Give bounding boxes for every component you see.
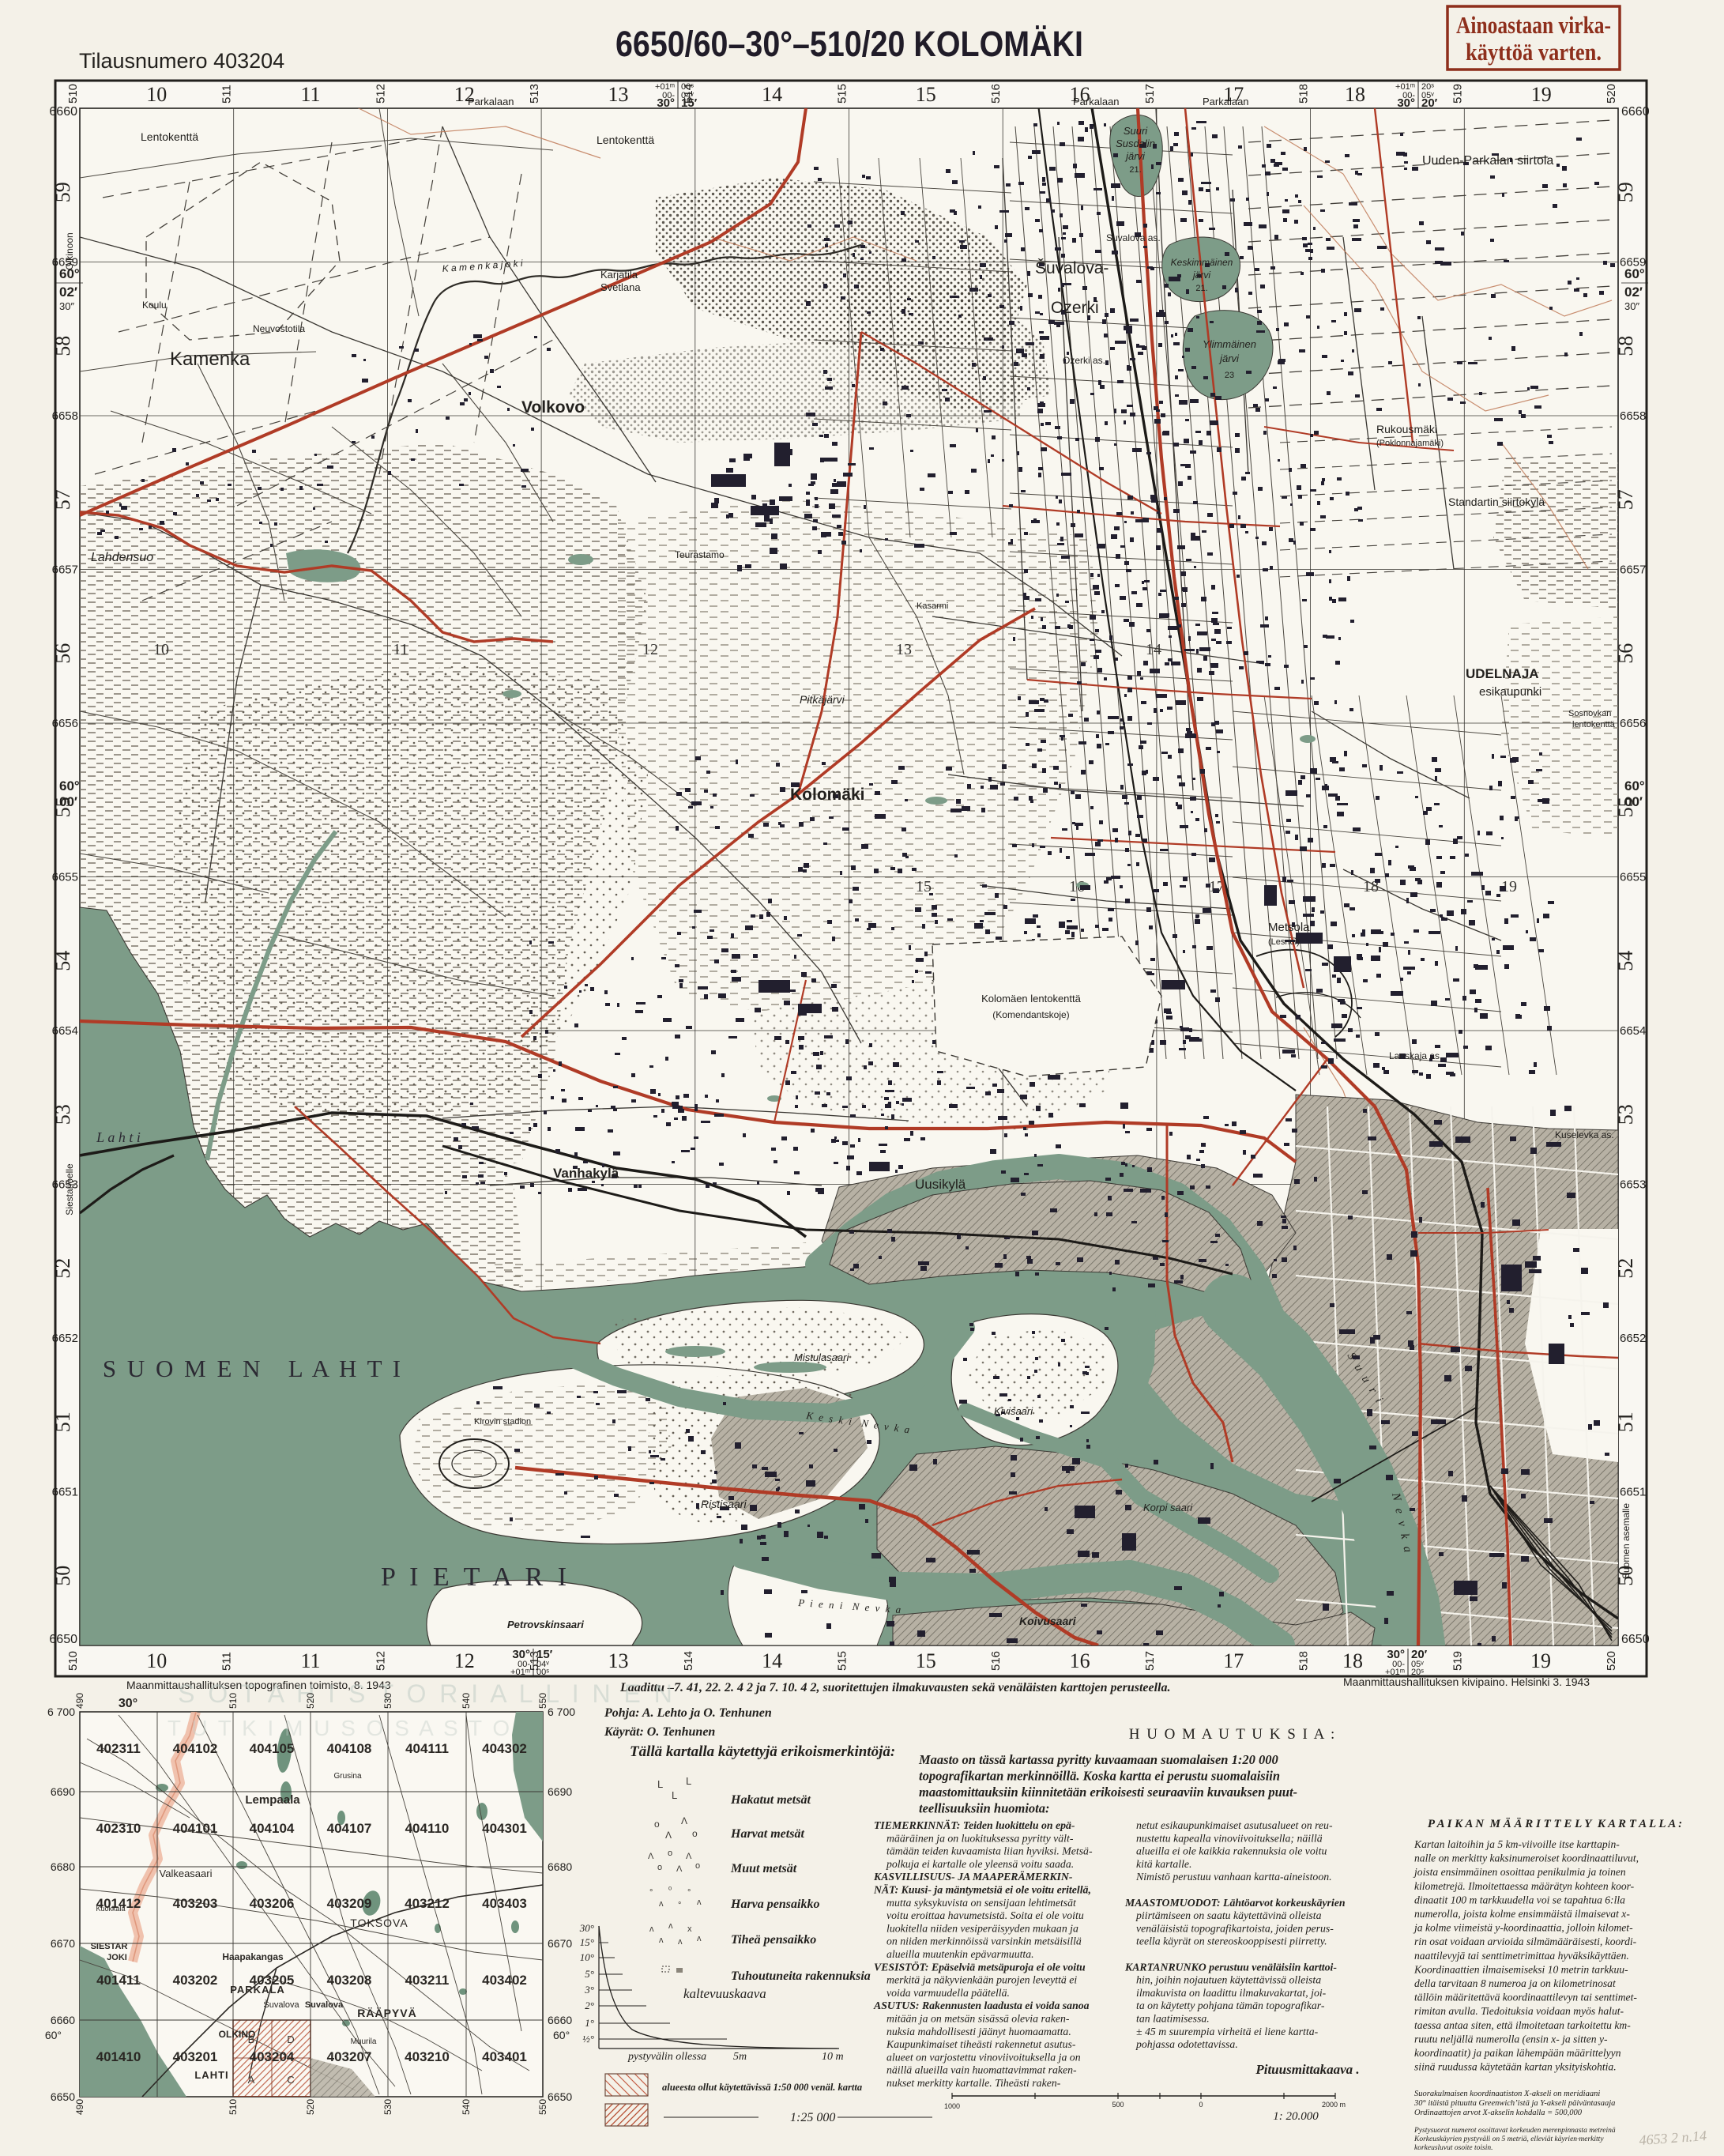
svg-text:6690: 6690 — [548, 1785, 572, 1798]
svg-text:6660: 6660 — [548, 2014, 572, 2026]
svg-text:21.: 21. — [1195, 284, 1207, 293]
svg-text:näillä alueilla vain huomattav: näillä alueilla vain huomattavimmat rake… — [886, 2064, 1077, 2076]
svg-text:Uuden-Parkalan siirtola: Uuden-Parkalan siirtola — [1422, 154, 1553, 168]
svg-text:518: 518 — [1297, 84, 1311, 104]
svg-text:Kolomäki: Kolomäki — [790, 786, 865, 804]
svg-text:Maanmittaushallituksen kivipa: Maanmittaushallituksen kivipaino. Helsin… — [1343, 1675, 1590, 1688]
svg-text:6660: 6660 — [1621, 105, 1650, 119]
svg-text:Ordinaattojen arvot X-akselin: Ordinaattojen arvot X-akselin kohdalla =… — [1414, 2109, 1583, 2117]
svg-text:luokitella niiden vesiperäisyy: luokitella niiden vesiperäisyyden mukaan… — [886, 1922, 1078, 1934]
svg-text:550: 550 — [537, 1693, 548, 1709]
svg-text:59: 59 — [1614, 182, 1637, 202]
svg-text:Valkeasaari: Valkeasaari — [160, 1868, 213, 1879]
svg-text:nustettu kapealla vinoviivoitu: nustettu kapealla vinoviivoituksella; nä… — [1136, 1832, 1323, 1844]
svg-text:Kasarmi: Kasarmi — [917, 601, 948, 611]
svg-text:20′: 20′ — [1421, 96, 1438, 110]
svg-text:MAASTOMUODOT: Lähtöarvot korke: MAASTOMUODOT: Lähtöarvot korkeuskäyrien — [1124, 1897, 1346, 1909]
svg-text:15°: 15° — [580, 1936, 594, 1948]
svg-text:Vanhakylä: Vanhakylä — [553, 1166, 619, 1181]
svg-text:53: 53 — [1614, 1104, 1637, 1125]
svg-text:ο: ο — [654, 1819, 660, 1830]
svg-text:pystyvälin ollessa: pystyvälin ollessa — [627, 2051, 706, 2063]
svg-text:PARKALA: PARKALA — [230, 1984, 285, 1996]
svg-text:19: 19 — [1530, 1649, 1551, 1672]
svg-text:Parkalaan: Parkalaan — [1073, 96, 1120, 107]
svg-text:30″: 30″ — [1624, 300, 1639, 312]
svg-text:30°: 30° — [119, 1697, 137, 1710]
svg-text:403203: 403203 — [173, 1896, 218, 1911]
svg-text:Nimistö perustuu vanhaan kartt: Nimistö perustuu vanhaan kartta-aineisto… — [1135, 1871, 1332, 1883]
svg-text:401411: 401411 — [96, 1973, 141, 1988]
svg-text:3°: 3° — [584, 1984, 594, 1996]
svg-text:Pituusmittakaava .: Pituusmittakaava . — [1255, 2062, 1359, 2077]
svg-text:järvi: järvi — [1191, 269, 1210, 281]
svg-text:+01ᵐ: +01ᵐ — [510, 1668, 530, 1677]
svg-text:1°: 1° — [585, 2017, 594, 2029]
svg-text:6650: 6650 — [49, 1633, 77, 1646]
svg-text:Kaupunkimaiset tiheästi rakenn: Kaupunkimaiset tiheästi rakennetut asutu… — [886, 2038, 1076, 2050]
svg-text:513: 513 — [528, 84, 541, 104]
svg-text:Ozerki as.: Ozerki as. — [1063, 355, 1105, 366]
svg-text:404104: 404104 — [250, 1821, 295, 1836]
svg-text:5°: 5° — [585, 1968, 594, 1980]
svg-text:403201: 403201 — [173, 2049, 218, 2064]
svg-text:rimitan avulla. Tiedoituksia v: rimitan avulla. Tiedoituksia voidaan myö… — [1414, 2005, 1624, 2017]
svg-text:alueesta ollut käytettävissä: alueesta ollut käytettävissä 1:50 000 ve… — [662, 2082, 862, 2093]
svg-text:(Komendantskoje): (Komendantskoje) — [992, 1009, 1069, 1020]
svg-text:54: 54 — [1614, 951, 1637, 971]
svg-text:°: ° — [678, 1901, 681, 1910]
svg-text:13: 13 — [896, 641, 912, 658]
svg-text:Suomen asemalle: Suomen asemalle — [1620, 1503, 1632, 1579]
svg-text:490: 490 — [74, 2099, 85, 2115]
svg-text:L: L — [672, 1789, 677, 1801]
svg-text:Korkeuskäyrien pystyväli on: Korkeuskäyrien pystyväli on 5 metriä, el… — [1413, 2135, 1604, 2143]
svg-text:6657: 6657 — [1620, 563, 1646, 577]
svg-text:ο: ο — [657, 1863, 662, 1872]
svg-text:½°: ½° — [582, 2033, 594, 2045]
svg-text:510: 510 — [66, 84, 80, 104]
svg-text:teellisuuksiin huomiota:: teellisuuksiin huomiota: — [919, 1801, 1050, 1816]
svg-text:ja kolme viimeistä y-koordinaa: ja kolme viimeistä y-koordinaattia, joll… — [1413, 1922, 1633, 1934]
svg-text:Svetlana: Svetlana — [600, 281, 641, 293]
svg-text:koordinaatit) ja paikan lähemp: koordinaatit) ja paikan lähempään määrit… — [1414, 2047, 1621, 2060]
svg-text:00′: 00′ — [1624, 794, 1643, 809]
svg-text:Käyrät: O. Tenhunen: Käyrät: O. Tenhunen — [604, 1725, 715, 1739]
svg-text:teella käyrät on stereoskooppi: teella käyrät on stereoskooppisesti piir… — [1136, 1935, 1327, 1947]
svg-text:naattilevyjä tai senttimetrimi: naattilevyjä tai senttimetrimittaa hyväk… — [1414, 1950, 1629, 1962]
svg-text:Kivisaari: Kivisaari — [994, 1405, 1033, 1417]
svg-text:nalle on merkitty kaksinumeroi: nalle on merkitty kaksinumeroiset koordi… — [1414, 1853, 1639, 1864]
svg-text:51: 51 — [51, 1412, 74, 1432]
svg-text:15′: 15′ — [681, 96, 698, 110]
svg-text:30°: 30° — [1397, 96, 1415, 110]
svg-text:404102: 404102 — [173, 1741, 218, 1756]
svg-text:Λ: Λ — [676, 1864, 683, 1874]
svg-text:Parkalaan: Parkalaan — [1203, 96, 1249, 107]
svg-text:6650: 6650 — [548, 2090, 572, 2103]
svg-text:Λ: Λ — [648, 1852, 654, 1861]
svg-text:Ozerki: Ozerki — [1051, 299, 1099, 317]
svg-text:kaltevuuskaava: kaltevuuskaava — [683, 1986, 766, 2001]
svg-text:Rukousmäki: Rukousmäki — [1376, 423, 1437, 435]
svg-text:Ylimmäinen: Ylimmäinen — [1203, 338, 1256, 350]
svg-text:403401: 403401 — [482, 2049, 527, 2064]
svg-text:23: 23 — [1225, 371, 1234, 380]
svg-text:510: 510 — [66, 1651, 80, 1671]
svg-text:mutta syksykuvista on sensijaa: mutta syksykuvista on sensijaan lehtimet… — [886, 1897, 1077, 1909]
svg-text:P I E T A R I: P I E T A R I — [381, 1562, 570, 1592]
svg-text:Tuhoutuneita rakennuksia: Tuhoutuneita rakennuksia — [731, 1969, 871, 1983]
svg-text:10°: 10° — [580, 1951, 594, 1963]
svg-text:ο: ο — [692, 1828, 698, 1839]
svg-text:6655: 6655 — [52, 871, 78, 884]
svg-text:T U T K I M U S O S A S T O: T U T K I M U S O S A S T O — [168, 1716, 512, 1740]
svg-text:numerolla, joista kolme ensimm: numerolla, joista kolme ensimmäistä ilma… — [1414, 1908, 1630, 1920]
svg-text:Koordinaattien ilmaisemiseksi: Koordinaattien ilmaisemiseksi 10 metrin … — [1413, 1963, 1628, 1975]
svg-text:Harva pensaikko: Harva pensaikko — [730, 1898, 819, 1911]
svg-text:Laadittu –7. 41, 22. 2. 4 2 j: Laadittu –7. 41, 22. 2. 4 2 ja 7. 10. 4 … — [619, 1681, 1170, 1694]
svg-text:Muurila: Muurila — [351, 2037, 377, 2046]
svg-text:13: 13 — [608, 1649, 629, 1672]
svg-text:403211: 403211 — [405, 1973, 450, 1988]
svg-text:6657: 6657 — [52, 563, 78, 577]
svg-text:19: 19 — [1531, 83, 1552, 106]
svg-text:6670: 6670 — [548, 1937, 572, 1950]
svg-text:alueilla ei ole kaikkia rakenn: alueilla ei ole kaikkia rakennuksia ole … — [1136, 1845, 1327, 1857]
svg-text:15: 15 — [916, 83, 936, 106]
svg-text:403402: 403402 — [482, 1973, 527, 1988]
svg-text:6660: 6660 — [51, 2014, 75, 2026]
svg-text:on niiden merkinnöissä varsink: on niiden merkinnöissä varsinkin metsäis… — [886, 1935, 1082, 1947]
svg-text:520: 520 — [305, 2099, 316, 2115]
svg-text:KARTANRUNKO perustuu venäläisi: KARTANRUNKO perustuu venäläisiin karttoi… — [1124, 1961, 1337, 1973]
svg-text:UDELNAJA: UDELNAJA — [1466, 666, 1539, 681]
svg-text:Korpi saari: Korpi saari — [1143, 1502, 1193, 1513]
svg-text:402311: 402311 — [96, 1741, 141, 1756]
svg-text:Koulu: Koulu — [142, 300, 167, 311]
svg-text:Šuvalova-: Šuvalova- — [1035, 259, 1109, 277]
svg-text:6680: 6680 — [548, 1860, 572, 1873]
svg-text:14: 14 — [762, 83, 782, 106]
svg-text:OLKINO: OLKINO — [219, 2029, 256, 2040]
svg-text:°: ° — [687, 1888, 691, 1898]
svg-text:Uusikylä: Uusikylä — [915, 1177, 966, 1192]
svg-text:ʌ: ʌ — [697, 1934, 702, 1943]
svg-text:16: 16 — [1070, 1649, 1090, 1672]
svg-text:6651: 6651 — [52, 1486, 78, 1499]
svg-text:6650: 6650 — [51, 2090, 75, 2103]
svg-text:alueilla muutenkin epävarmuutt: alueilla muutenkin epävarmuutta. — [886, 1948, 1034, 1960]
svg-text:L: L — [686, 1775, 691, 1787]
svg-text:403403: 403403 — [482, 1896, 527, 1911]
svg-text:käyttöä varten.: käyttöä varten. — [1466, 38, 1602, 66]
svg-text:02′: 02′ — [59, 285, 77, 300]
svg-text:517: 517 — [1143, 84, 1157, 104]
svg-text:6651: 6651 — [1620, 1486, 1646, 1499]
svg-text:13: 13 — [608, 83, 629, 106]
svg-text:Kuselevka as.: Kuselevka as. — [1555, 1129, 1614, 1140]
svg-text:6656: 6656 — [1620, 717, 1646, 730]
svg-text:6652: 6652 — [52, 1332, 78, 1345]
svg-text:RÄÄPYVÄ: RÄÄPYVÄ — [357, 2007, 416, 2019]
svg-text:404111: 404111 — [405, 1741, 449, 1756]
svg-text:Kolomäen lentokenttä: Kolomäen lentokenttä — [981, 993, 1082, 1004]
svg-text:5m: 5m — [733, 2051, 747, 2063]
svg-text:Ainoastaan virka-: Ainoastaan virka- — [1456, 11, 1611, 39]
svg-text:esikaupunki: esikaupunki — [1479, 685, 1541, 699]
svg-text:LAHTI: LAHTI — [194, 2069, 228, 2081]
svg-text:TIEMERKINNÄT: Teiden luokitte: TIEMERKINNÄT: Teiden luokittelu on epä- — [874, 1819, 1075, 1831]
svg-text:54: 54 — [51, 951, 74, 971]
svg-text:piirtämiseen on saatu käytettä: piirtämiseen on saatu käytettävinä ollei… — [1135, 1909, 1322, 1921]
svg-text:512: 512 — [374, 84, 387, 104]
svg-text:60°: 60° — [1624, 778, 1645, 793]
svg-text:403208: 403208 — [327, 1973, 372, 1988]
svg-text:50: 50 — [51, 1566, 74, 1586]
svg-text:korkeusluvut osoite toisin.: korkeusluvut osoite toisin. — [1414, 2144, 1493, 2152]
svg-text:6680: 6680 — [51, 1860, 75, 1873]
svg-text:KASVILLISUUS- JA MAAPERÄMERKIN: KASVILLISUUS- JA MAAPERÄMERKIN- — [873, 1871, 1073, 1883]
svg-text:514: 514 — [682, 1651, 695, 1671]
svg-text:Lempaala: Lempaala — [245, 1793, 300, 1807]
svg-text:polkuja ei kartalle ole yleens: polkuja ei kartalle ole yleensä voitu sa… — [886, 1858, 1074, 1870]
svg-text:Ristisaari: Ristisaari — [701, 1498, 747, 1510]
svg-text:516: 516 — [989, 1651, 1003, 1671]
svg-text:530: 530 — [382, 2099, 393, 2115]
svg-text:404301: 404301 — [482, 1821, 527, 1836]
svg-text:Koivusaari: Koivusaari — [1019, 1615, 1077, 1627]
svg-text:NÄT: Kuusi- ja mäntymetsiä ei: NÄT: Kuusi- ja mäntymetsiä ei ole voitu … — [873, 1884, 1091, 1896]
svg-text:518: 518 — [1297, 1651, 1311, 1671]
svg-text:402310: 402310 — [96, 1821, 141, 1836]
svg-text:6658: 6658 — [1620, 409, 1646, 423]
svg-text:Λ: Λ — [665, 1830, 672, 1841]
svg-text:°: ° — [649, 1888, 653, 1898]
svg-text:taessa antaa siten, että ilmoi: taessa antaa siten, että ilmoitetaan tar… — [1414, 2019, 1631, 2031]
svg-text:alueet on varjostettu vinoviiv: alueet on varjostettu vinoviivoituksella… — [886, 2051, 1081, 2063]
svg-text:550: 550 — [537, 2099, 548, 2115]
svg-text:18: 18 — [1342, 1649, 1363, 1672]
svg-text:1:25 000: 1:25 000 — [790, 2111, 835, 2124]
svg-text:Olkinoon: Olkinoon — [64, 232, 75, 269]
svg-text:della tarvitaan 8 numeroa ja o: della tarvitaan 8 numeroa ja on kilometr… — [1414, 1977, 1617, 1989]
svg-text:1: 20.000: 1: 20.000 — [1273, 2110, 1319, 2123]
svg-text:х: х — [687, 1924, 692, 1934]
svg-text:Petrovskinsaari: Petrovskinsaari — [507, 1619, 584, 1630]
svg-text:6 700: 6 700 — [47, 1706, 75, 1718]
svg-text:12: 12 — [454, 1649, 475, 1672]
svg-text:Muut metsät: Muut metsät — [730, 1862, 797, 1875]
svg-text:ilmakuvista on laadittu ilmaku: ilmakuvista on laadittu ilmakuvakartat, … — [1136, 1987, 1327, 1999]
svg-text:L a h t i: L a h t i — [96, 1129, 141, 1145]
svg-text:00′: 00′ — [59, 794, 77, 809]
svg-text:12: 12 — [642, 641, 658, 658]
svg-text:6654: 6654 — [52, 1024, 78, 1038]
svg-text:Šuvalova: Šuvalova — [263, 2000, 299, 2010]
svg-text:Sosnovkan: Sosnovkan — [1568, 709, 1611, 718]
svg-text:siinä ruudussa käytetään karta: siinä ruudussa käytetään kartan yksityis… — [1414, 2061, 1617, 2073]
svg-text:Kamenka: Kamenka — [170, 349, 250, 370]
svg-text:10: 10 — [153, 641, 169, 658]
svg-text:SIESTAR: SIESTAR — [91, 1942, 128, 1951]
svg-text:30°: 30° — [579, 1922, 594, 1934]
svg-text:rin osat voidaan arvioida silm: rin osat voidaan arvioida silmämääräises… — [1414, 1935, 1637, 1947]
svg-text:Lanskaja as.: Lanskaja as. — [1389, 1050, 1442, 1061]
svg-text:Hakatut metsät: Hakatut metsät — [730, 1793, 811, 1807]
svg-text:tällöin määritettävä koordinaa: tällöin määritettävä koordinaattilevyn t… — [1414, 1992, 1637, 2003]
svg-text:403209: 403209 — [327, 1896, 372, 1911]
svg-text:Pitkäjärvi: Pitkäjärvi — [800, 693, 845, 706]
svg-text:401410: 401410 — [96, 2049, 141, 2064]
svg-text:Suorakulmaisen koordinaatiston: Suorakulmaisen koordinaatiston X-akseli … — [1414, 2090, 1600, 2098]
svg-text:ʌ: ʌ — [678, 1937, 683, 1947]
svg-text:58: 58 — [1614, 336, 1637, 356]
svg-text:H U O M A U T U K S I A :: H U O M A U T U K S I A : — [1129, 1726, 1337, 1743]
svg-text:515: 515 — [836, 84, 849, 104]
svg-text:Pystysuorat numerot osoittavat: Pystysuorat numerot osoittavat korkeuden… — [1413, 2127, 1616, 2135]
svg-text:6653: 6653 — [1620, 1178, 1646, 1192]
svg-text:10: 10 — [146, 1649, 167, 1672]
svg-text:6650: 6650 — [1621, 1633, 1650, 1646]
svg-text:ruutu neljällä numerolla (ensi: ruutu neljällä numerolla (ensin x- ja si… — [1414, 2033, 1608, 2045]
svg-text:(Poklonnajamäki): (Poklonnajamäki) — [1376, 439, 1444, 448]
svg-text:403206: 403206 — [250, 1896, 295, 1911]
svg-text:11: 11 — [393, 641, 408, 658]
svg-text:Pohja: A. Lehto ja O.: Pohja: A. Lehto ja O. Tenhunen — [604, 1706, 772, 1720]
svg-text:kitä kartalle.: kitä kartalle. — [1136, 1858, 1192, 1870]
svg-text:ʌ: ʌ — [659, 1935, 664, 1945]
svg-text:520: 520 — [305, 1693, 316, 1709]
svg-text:540: 540 — [461, 2099, 472, 2115]
svg-text:52: 52 — [51, 1258, 74, 1279]
svg-text:Maasto on tässä kartassa pyrit: Maasto on tässä kartassa pyritty kuvaama… — [918, 1752, 1278, 1767]
svg-text:ʌ: ʌ — [668, 1921, 673, 1931]
svg-text:403204: 403204 — [250, 2049, 295, 2064]
svg-text:6690: 6690 — [51, 1785, 75, 1798]
svg-text:515: 515 — [836, 1651, 849, 1671]
svg-text:Susdalin: Susdalin — [1116, 138, 1155, 149]
svg-text:11: 11 — [300, 1649, 320, 1672]
svg-text:tämään teiden kuvaamista liian: tämään teiden kuvaamista liian hyviksi. … — [886, 1845, 1093, 1857]
svg-text:404302: 404302 — [482, 1741, 527, 1756]
svg-text:Parkalaan: Parkalaan — [468, 96, 514, 107]
svg-text:± 45 m suurempia virheitä ei l: ± 45 m suurempia virheitä ei liene kartt… — [1136, 2026, 1319, 2037]
svg-text:520: 520 — [1605, 1651, 1618, 1671]
svg-text:lentokenttä: lentokenttä — [1572, 720, 1616, 729]
svg-text:500: 500 — [1112, 2101, 1124, 2109]
svg-text:Haapakangas: Haapakangas — [222, 1951, 284, 1962]
svg-text:1000: 1000 — [944, 2102, 960, 2110]
svg-text:15: 15 — [916, 1649, 936, 1672]
svg-text:D: D — [287, 2033, 294, 2045]
svg-text:voitu eroittaa havumetsistä. S: voitu eroittaa havumetsistä. Soita ei ol… — [886, 1909, 1084, 1921]
svg-text:404107: 404107 — [327, 1821, 372, 1836]
svg-text:ASUTUS: Rakennusten laadusta: ASUTUS: Rakennusten laadusta ei voida sa… — [873, 2000, 1090, 2011]
svg-text:540: 540 — [461, 1693, 472, 1709]
svg-text:510: 510 — [228, 1693, 239, 1709]
svg-text:ʌ: ʌ — [697, 1898, 702, 1907]
svg-text:ο: ο — [668, 1849, 672, 1858]
svg-text:60°: 60° — [553, 2029, 570, 2041]
svg-text:TOKSOVA: TOKSOVA — [350, 1917, 408, 1929]
svg-text:Λ: Λ — [681, 1815, 687, 1826]
svg-text:2000 m: 2000 m — [1322, 2101, 1346, 2109]
svg-text:519: 519 — [1451, 84, 1464, 104]
svg-text:Kuokkala: Kuokkala — [96, 1905, 125, 1913]
svg-text:6655: 6655 — [1620, 871, 1646, 884]
svg-text:dinaatit 100 m tarkkuudella vo: dinaatit 100 m tarkkuudella voi se tapah… — [1414, 1894, 1625, 1905]
svg-text:404108: 404108 — [327, 1741, 372, 1756]
svg-text:nukset merkitty kartalle. Tih: nukset merkitty kartalle. Tiheästi raken… — [886, 2077, 1061, 2089]
svg-text:519: 519 — [1451, 1651, 1464, 1671]
svg-text:kilometrejä. Ilmoitettaessa mä: kilometrejä. Ilmoitettaessa määrätyn koh… — [1414, 1880, 1635, 1892]
svg-text:0: 0 — [1199, 2101, 1203, 2109]
svg-text:404105: 404105 — [250, 1741, 295, 1756]
svg-text:Lentokenttä: Lentokenttä — [141, 130, 198, 143]
svg-text:Harvat metsät: Harvat metsät — [730, 1827, 804, 1841]
svg-text:404110: 404110 — [405, 1821, 450, 1836]
svg-text:21.: 21. — [1129, 165, 1141, 175]
svg-text:6658: 6658 — [52, 409, 78, 423]
svg-text:Suvalova: Suvalova — [305, 2000, 344, 2010]
svg-text:6660: 6660 — [49, 105, 77, 119]
svg-text:17: 17 — [1223, 1649, 1244, 1672]
svg-text:6670: 6670 — [51, 1937, 75, 1950]
svg-text:pohjassa odotettavissa.: pohjassa odotettavissa. — [1135, 2038, 1238, 2050]
svg-text:merkitä ja näkyvienkään puroje: merkitä ja näkyvienkään purojen leveyttä… — [886, 1974, 1077, 1986]
svg-text:00ˢ: 00ˢ — [536, 1668, 549, 1677]
svg-text:joista ensimmäinen osoittaa pe: joista ensimmäinen osoittaa penikulmia j… — [1413, 1866, 1626, 1878]
svg-text:517: 517 — [1143, 1651, 1157, 1671]
svg-text:6656: 6656 — [52, 717, 78, 730]
svg-text:Tiheä pensaikko: Tiheä pensaikko — [731, 1933, 816, 1947]
svg-text:Kirovin stadion: Kirovin stadion — [474, 1417, 531, 1427]
svg-text:Karjatila: Karjatila — [600, 269, 638, 281]
svg-text:10: 10 — [146, 83, 167, 106]
svg-text:56: 56 — [51, 643, 74, 664]
svg-text:C: C — [287, 2074, 294, 2086]
svg-text:53: 53 — [51, 1104, 74, 1125]
svg-text:Grusina: Grusina — [333, 1772, 361, 1781]
svg-text:510: 510 — [228, 2099, 239, 2115]
svg-text:57: 57 — [51, 489, 74, 510]
svg-text:403210: 403210 — [405, 2049, 450, 2064]
svg-text:VESISTÖT: Epäselviä metsäpuroj: VESISTÖT: Epäselviä metsäpuroja ei ole v… — [874, 1960, 1086, 1973]
svg-text:511: 511 — [220, 85, 234, 104]
svg-text:10 m: 10 m — [822, 2051, 844, 2063]
svg-text:ο: ο — [695, 1861, 700, 1871]
svg-text:Lentokenttä: Lentokenttä — [597, 134, 654, 146]
svg-text:P A I K A N M Ä Ä R I T T E L: P A I K A N M Ä Ä R I T T E L Y K A R T … — [1428, 1818, 1682, 1830]
svg-text:516: 516 — [989, 84, 1003, 104]
svg-text:järvi: järvi — [1124, 150, 1146, 162]
svg-text:58: 58 — [51, 336, 74, 356]
svg-text:maastomittauksiin kiinnitetään: maastomittauksiin kiinnitetään erikoises… — [919, 1785, 1297, 1800]
svg-text:Lahdensuo: Lahdensuo — [91, 551, 153, 564]
svg-text:Metsola: Metsola — [1268, 921, 1310, 934]
svg-text:490: 490 — [74, 1693, 85, 1709]
svg-text:404101: 404101 — [173, 1821, 218, 1836]
svg-text:512: 512 — [374, 1651, 387, 1671]
svg-text:topografikartan merkinnöillä.: topografikartan merkinnöillä. Koska kart… — [919, 1769, 1280, 1784]
svg-text:ʌ: ʌ — [649, 1924, 654, 1934]
svg-text:14: 14 — [762, 1649, 782, 1672]
svg-text:403212: 403212 — [405, 1896, 450, 1911]
svg-text:30° itäistä pituutta Greenwic: 30° itäistä pituutta Greenwich’istä ja Y… — [1413, 2099, 1615, 2108]
svg-text:A: A — [248, 2074, 255, 2086]
svg-text:netut esikaupunkimaiset asutus: netut esikaupunkimaiset asutusalueet on … — [1136, 1819, 1333, 1831]
